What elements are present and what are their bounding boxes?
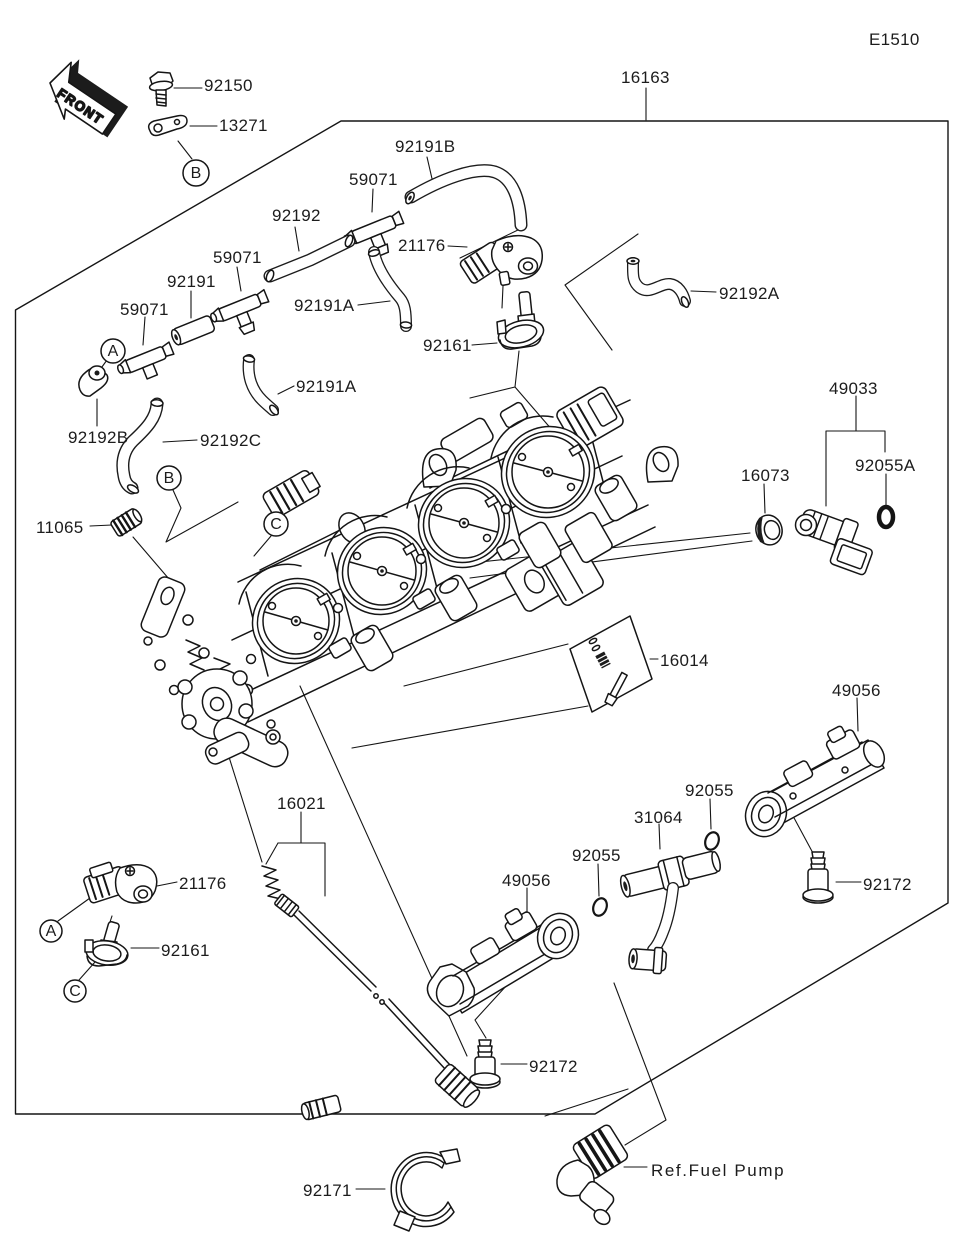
svg-text:C: C xyxy=(270,516,282,533)
svg-text:92055: 92055 xyxy=(685,781,734,800)
svg-text:Ref.Fuel Pump: Ref.Fuel Pump xyxy=(651,1161,785,1180)
svg-text:16163: 16163 xyxy=(621,68,670,87)
svg-text:92192A: 92192A xyxy=(719,284,780,303)
svg-text:B: B xyxy=(164,470,175,487)
svg-text:16073: 16073 xyxy=(741,466,790,485)
svg-text:C: C xyxy=(69,983,81,1000)
svg-text:92192B: 92192B xyxy=(68,428,128,447)
svg-text:92055: 92055 xyxy=(572,846,621,865)
svg-text:92192: 92192 xyxy=(272,206,321,225)
svg-text:92161: 92161 xyxy=(423,336,472,355)
svg-text:31064: 31064 xyxy=(634,808,683,827)
svg-text:92171: 92171 xyxy=(303,1181,352,1200)
svg-text:92150: 92150 xyxy=(204,76,253,95)
svg-text:A: A xyxy=(108,343,119,360)
svg-text:92192C: 92192C xyxy=(200,431,261,450)
svg-text:59071: 59071 xyxy=(213,248,262,267)
svg-text:92191B: 92191B xyxy=(395,137,455,156)
svg-text:59071: 59071 xyxy=(349,170,398,189)
svg-text:49056: 49056 xyxy=(502,871,551,890)
svg-text:11065: 11065 xyxy=(36,518,84,537)
svg-text:13271: 13271 xyxy=(219,116,268,135)
svg-text:92191A: 92191A xyxy=(294,296,355,315)
svg-text:92172: 92172 xyxy=(863,875,912,894)
svg-text:49033: 49033 xyxy=(829,379,878,398)
svg-text:21176: 21176 xyxy=(398,236,446,255)
svg-text:21176: 21176 xyxy=(179,874,227,893)
svg-text:92172: 92172 xyxy=(529,1057,578,1076)
svg-text:92191A: 92191A xyxy=(296,377,357,396)
svg-text:49056: 49056 xyxy=(832,681,881,700)
svg-text:E1510: E1510 xyxy=(869,30,920,49)
svg-text:92055A: 92055A xyxy=(855,456,916,475)
svg-text:92191: 92191 xyxy=(167,272,216,291)
svg-text:92161: 92161 xyxy=(161,941,210,960)
svg-text:B: B xyxy=(191,165,202,182)
svg-text:59071: 59071 xyxy=(120,300,169,319)
svg-text:16021: 16021 xyxy=(277,794,326,813)
svg-text:A: A xyxy=(46,923,57,940)
svg-text:16014: 16014 xyxy=(660,651,709,670)
